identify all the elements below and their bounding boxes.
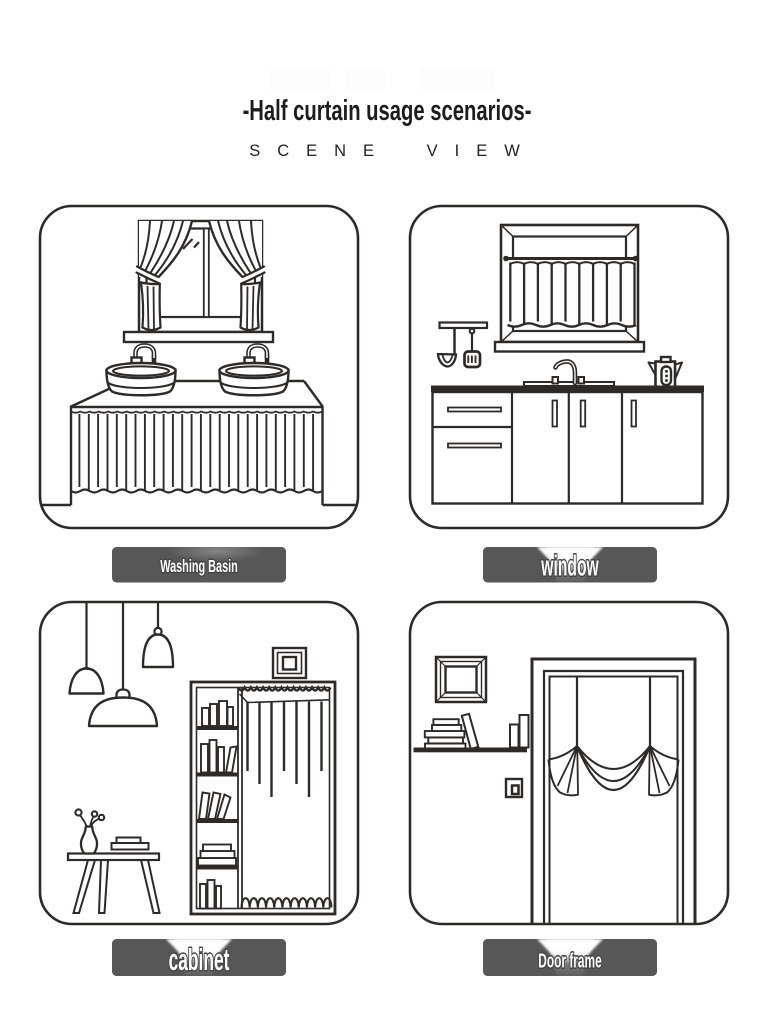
svg-text:SCENE VIEW: SCENE VIEW [249,142,537,160]
svg-text:Door frame: Door frame [538,949,601,972]
svg-text:cabinet: cabinet [169,943,230,978]
svg-text:Washing Basin: Washing Basin [160,558,238,577]
svg-text:window: window [541,549,600,581]
svg-text:-Half curtain usage scenarios-: -Half curtain usage scenarios- [243,96,532,127]
